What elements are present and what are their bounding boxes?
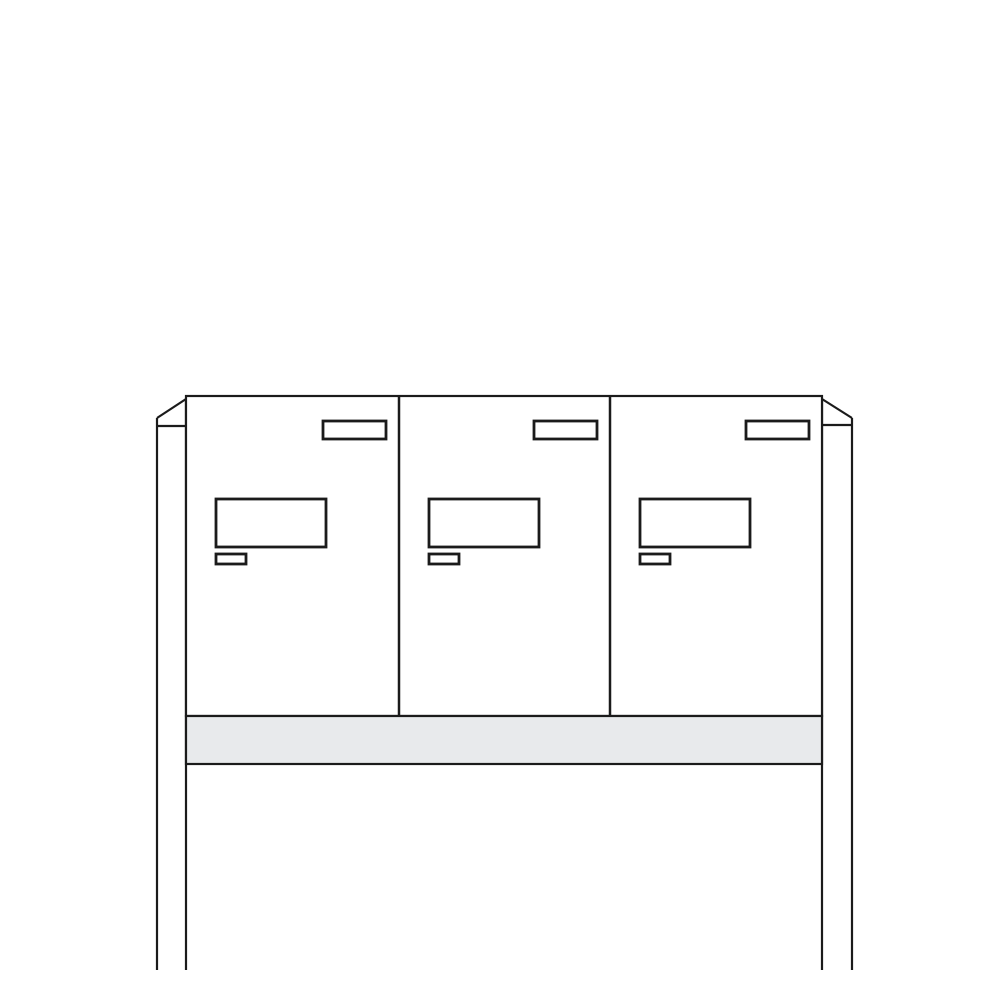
- letterbox-unit-illustration: [0, 0, 1000, 1000]
- lock-3: [640, 554, 670, 564]
- letter-flap-1: [216, 499, 326, 547]
- letter-flap-3: [640, 499, 750, 547]
- product-illustration-canvas: [0, 0, 1000, 1000]
- lock-2: [429, 554, 459, 564]
- mounting-shelf: [186, 716, 822, 764]
- name-plate-3: [746, 421, 809, 439]
- cabinet-body: [186, 396, 822, 716]
- name-plate-1: [323, 421, 386, 439]
- letter-flap-2: [429, 499, 539, 547]
- lock-1: [216, 554, 246, 564]
- name-plate-2: [534, 421, 597, 439]
